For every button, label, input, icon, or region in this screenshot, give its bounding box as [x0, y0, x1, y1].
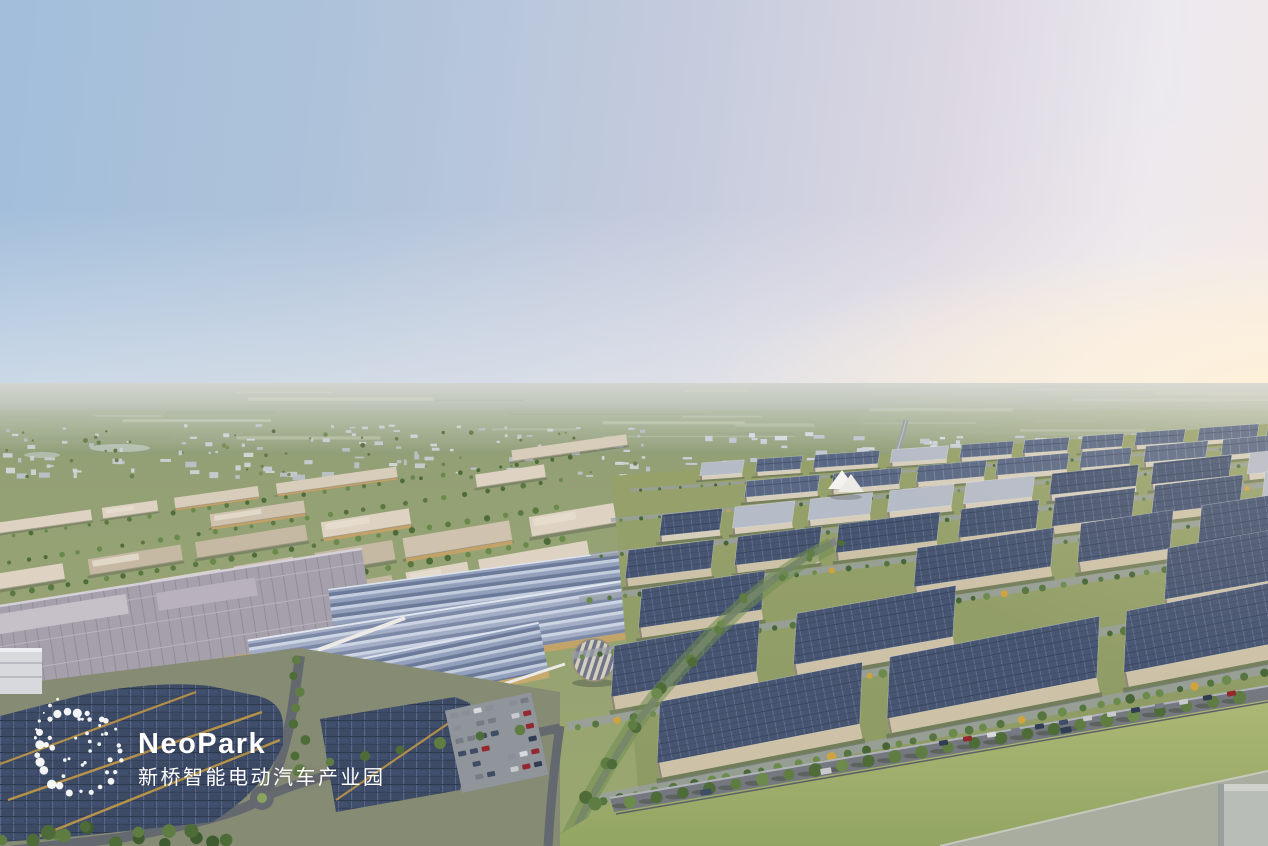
brand-subtitle-cn: 新桥智能电动汽车产业园: [138, 768, 386, 788]
parking-lot-with-cars: [445, 692, 549, 792]
neopark-logo: NeoPark 新桥智能电动汽车产业园: [34, 688, 386, 806]
corner-grey-building: [1218, 784, 1268, 846]
brand-name: NeoPark: [138, 730, 386, 759]
neopark-dot-sphere-icon: [34, 688, 126, 806]
neopark-aerial-rendering: NeoPark 新桥智能电动汽车产业园: [0, 0, 1268, 846]
logo-text-block: NeoPark 新桥智能电动汽车产业园: [138, 688, 386, 788]
